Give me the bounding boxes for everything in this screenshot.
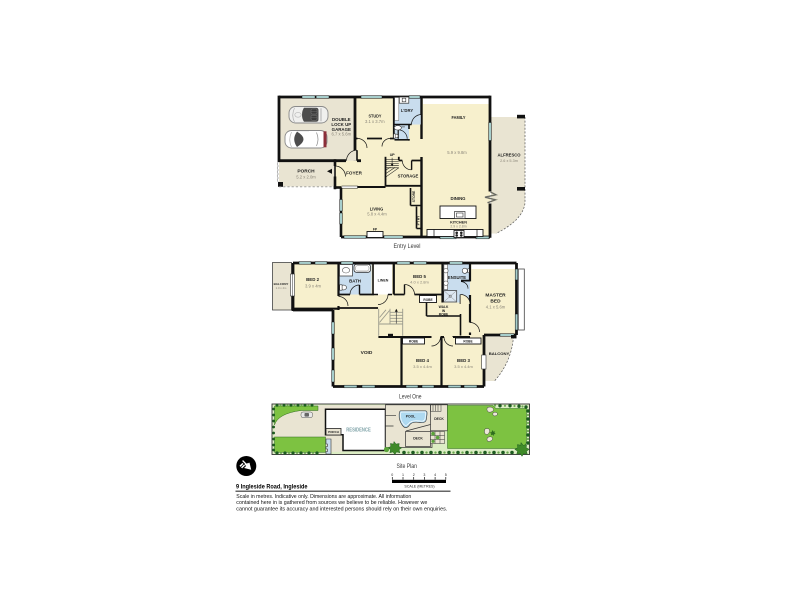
svg-text:5: 5 — [445, 473, 447, 477]
svg-text:0: 0 — [391, 473, 393, 477]
svg-text:RESIDENCE: RESIDENCE — [346, 428, 371, 434]
svg-text:4.0 x 2.8m: 4.0 x 2.8m — [410, 279, 429, 284]
svg-text:4: 4 — [434, 473, 436, 477]
svg-text:DECK: DECK — [434, 417, 444, 421]
svg-text:VOID: VOID — [361, 350, 373, 356]
svg-text:3.5 x 4.4m: 3.5 x 4.4m — [413, 364, 432, 369]
svg-text:9 Ingleside Road, Ingleside: 9 Ingleside Road, Ingleside — [236, 484, 308, 491]
svg-text:BED 5: BED 5 — [413, 274, 426, 279]
svg-text:5.2 x 2.0m: 5.2 x 2.0m — [296, 174, 316, 179]
svg-text:3: 3 — [423, 473, 425, 477]
svg-text:cannot guarantee its accuracy: cannot guarantee its accuracy and intere… — [236, 506, 447, 512]
svg-text:DECK: DECK — [413, 437, 423, 441]
svg-text:4.1 x 5.6m: 4.1 x 5.6m — [486, 305, 506, 310]
svg-text:Scale in metres. Indicative on: Scale in metres. Indicative only. Dimens… — [236, 494, 411, 500]
svg-text:ROBE: ROBE — [423, 298, 432, 302]
svg-text:DINING: DINING — [451, 196, 466, 202]
svg-text:PORCH: PORCH — [328, 430, 339, 434]
svg-text:BED: BED — [490, 298, 501, 304]
svg-text:SCALE (METRES): SCALE (METRES) — [404, 485, 434, 489]
svg-text:ENSUITE: ENSUITE — [448, 275, 466, 280]
svg-text:2.6 x 5.3m: 2.6 x 5.3m — [500, 159, 518, 163]
svg-text:LINEN: LINEN — [378, 279, 389, 283]
svg-text:BALCONY: BALCONY — [489, 351, 510, 356]
svg-text:ALFRESCO: ALFRESCO — [497, 153, 521, 158]
svg-text:ROBE: ROBE — [463, 340, 472, 344]
svg-text:5.9 x 9.8m: 5.9 x 9.8m — [447, 150, 467, 155]
svg-text:3.5 x 4.4m: 3.5 x 4.4m — [454, 364, 473, 369]
svg-text:6.7 x 5.6m: 6.7 x 5.6m — [332, 131, 352, 136]
svg-text:STORAGE: STORAGE — [398, 173, 419, 178]
svg-text:Entry Level: Entry Level — [394, 243, 421, 250]
svg-text:FAMILY: FAMILY — [452, 115, 467, 121]
svg-text:MASTER: MASTER — [485, 293, 506, 299]
svg-text:2.9 x 2.8m: 2.9 x 2.8m — [450, 224, 466, 228]
svg-text:FOYER: FOYER — [346, 171, 363, 176]
svg-text:BED 2: BED 2 — [306, 277, 319, 283]
svg-text:1.0 x 4m: 1.0 x 4m — [276, 286, 287, 290]
svg-text:P'TRY: P'TRY — [416, 215, 420, 225]
svg-text:ROBE: ROBE — [409, 340, 418, 344]
svg-text:UP: UP — [390, 153, 396, 157]
svg-text:1: 1 — [402, 473, 404, 477]
svg-text:ROBE: ROBE — [439, 313, 449, 317]
svg-text:L'DRY: L'DRY — [401, 108, 413, 113]
svg-text:BATH: BATH — [349, 279, 361, 284]
svg-text:FP: FP — [373, 228, 378, 232]
svg-text:STORE: STORE — [412, 190, 416, 202]
svg-text:Site Plan: Site Plan — [397, 463, 418, 470]
svg-text:3.1 x 3.7m: 3.1 x 3.7m — [365, 119, 385, 124]
svg-text:5.8 x 4.4m: 5.8 x 4.4m — [367, 212, 387, 217]
svg-text:2: 2 — [413, 473, 415, 477]
svg-text:3.9 x 4m: 3.9 x 4m — [305, 284, 322, 289]
svg-text:BED 4: BED 4 — [416, 358, 429, 363]
svg-text:contained here in is gathered: contained here in is gathered from sourc… — [236, 500, 427, 506]
svg-text:POOL: POOL — [406, 415, 416, 419]
svg-text:Level One: Level One — [399, 393, 422, 400]
svg-text:BED 3: BED 3 — [457, 358, 470, 363]
